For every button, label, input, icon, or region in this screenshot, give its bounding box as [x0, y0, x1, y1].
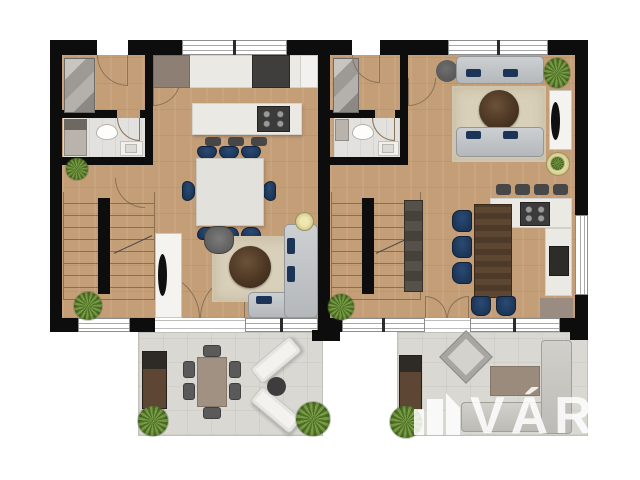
sink	[382, 144, 394, 153]
fridge-cabinet	[300, 55, 318, 88]
sofa-pillow	[466, 69, 481, 77]
plant	[328, 294, 354, 320]
outdoor-chair	[203, 407, 221, 419]
bar-stool	[228, 137, 244, 146]
sofa-pillow	[503, 69, 518, 77]
wall-top	[128, 40, 182, 55]
bar-stool	[251, 137, 267, 146]
lounger-cushion	[448, 339, 485, 376]
wall-top	[380, 40, 448, 55]
plant	[66, 158, 88, 180]
plant	[551, 157, 564, 170]
bar-stool	[205, 137, 221, 146]
wall-hall	[400, 55, 408, 118]
staircase-wall	[98, 198, 110, 294]
cooktop	[257, 106, 290, 132]
outdoor-dining-table	[197, 357, 227, 407]
kitchen-cabinet-brown	[153, 55, 190, 88]
dining-chair	[496, 296, 516, 316]
wall-bath	[330, 157, 408, 165]
wall-left-exterior	[50, 40, 62, 332]
round-side-table	[267, 377, 286, 396]
oven	[549, 246, 569, 276]
wall-party	[318, 40, 330, 332]
coffee-table	[229, 246, 271, 288]
outdoor-chair	[183, 383, 195, 400]
window-mullion	[513, 318, 516, 332]
bar-stool	[515, 184, 530, 195]
wardrobe	[64, 58, 95, 113]
plant	[296, 402, 330, 436]
coffee-table	[479, 90, 519, 130]
wall-stub	[570, 330, 588, 340]
watermark-text: VÁROS	[470, 386, 640, 446]
sofa-pillow	[287, 238, 295, 254]
wall-top	[50, 40, 97, 55]
sofa-pillow	[256, 296, 272, 304]
window-mullion	[280, 318, 283, 332]
dining-chair	[182, 181, 195, 201]
window-mullion	[497, 40, 500, 55]
dining-chair	[452, 210, 472, 232]
cooktop	[520, 202, 550, 226]
outdoor-chair	[203, 345, 221, 357]
window	[575, 215, 588, 295]
terrace-door-threshold	[155, 320, 245, 329]
toilet	[352, 124, 374, 140]
window-mullion	[382, 318, 385, 332]
wall-bath	[400, 110, 408, 165]
sofa-pillow	[503, 131, 518, 139]
washer	[335, 119, 349, 141]
door-mat	[540, 298, 573, 318]
wall-bottom	[130, 318, 155, 332]
plant	[138, 406, 168, 436]
logo-building-tall	[446, 393, 460, 435]
plant	[544, 58, 570, 88]
bar-stool	[534, 184, 549, 195]
outdoor-chair	[229, 383, 241, 400]
pouf	[436, 60, 458, 82]
floor-lamp	[295, 212, 314, 231]
staircase-wall	[362, 198, 374, 294]
kitchen-appliance-dark	[252, 55, 290, 88]
armchair	[204, 226, 234, 254]
window	[78, 318, 130, 332]
terrace-door-threshold	[425, 320, 470, 329]
washer-top	[64, 119, 87, 130]
toilet	[96, 124, 118, 140]
sofa-pillow	[287, 266, 295, 282]
outdoor-chair	[183, 361, 195, 378]
sofa-pillow	[466, 131, 481, 139]
watermark-logo	[414, 393, 462, 435]
dining-chair	[471, 296, 491, 316]
floor-plan: VÁROS	[0, 0, 640, 480]
bar-stool	[553, 184, 568, 195]
dining-chair	[452, 236, 472, 258]
wood-dining-table	[474, 204, 512, 298]
tv	[551, 102, 560, 140]
dining-table	[196, 158, 264, 226]
plant	[74, 292, 102, 320]
tall-cabinet	[404, 200, 423, 292]
logo-building-mid	[427, 399, 443, 435]
wall-stub	[312, 330, 340, 341]
wall-top	[330, 40, 352, 55]
tv	[158, 254, 167, 296]
window-mullion	[233, 40, 236, 55]
wall-bottom	[50, 318, 78, 332]
dining-chair	[263, 181, 276, 201]
wall-hall	[145, 55, 153, 118]
bar-stool	[496, 184, 511, 195]
outdoor-chair	[229, 361, 241, 378]
wall-bath	[145, 110, 153, 165]
wall-right-exterior	[575, 40, 588, 215]
dining-chair	[452, 262, 472, 284]
grill-cabinet	[142, 351, 167, 409]
sink	[125, 144, 137, 153]
logo-building-small	[414, 409, 424, 435]
